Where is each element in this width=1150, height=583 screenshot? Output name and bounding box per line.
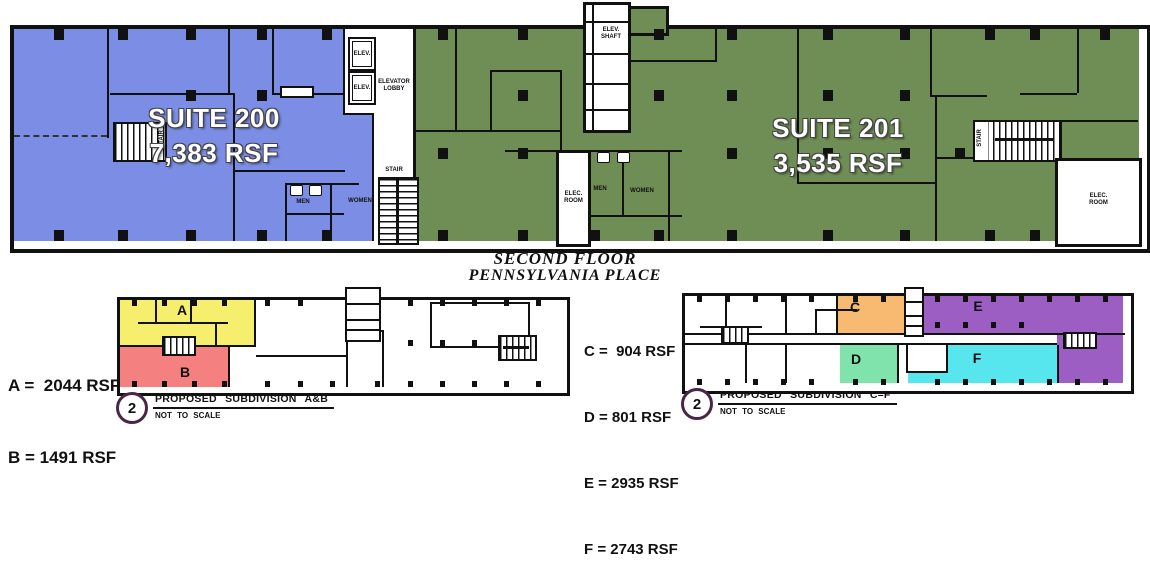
elev-label: ELEV. [354, 51, 371, 58]
column [440, 381, 445, 387]
legend-c: C = 904 RSF [584, 341, 679, 363]
legend-d: D = 801 RSF [584, 407, 679, 429]
subdivision-cf-plan: C E D F [682, 293, 1134, 394]
column [654, 230, 664, 241]
region-b-label: B [173, 364, 197, 380]
column [823, 230, 833, 241]
staircase-small [162, 336, 196, 356]
lobby-staircase [378, 177, 419, 245]
stair-rail [396, 179, 399, 243]
wall [430, 302, 530, 304]
column [162, 300, 167, 306]
region-a-label: A [170, 302, 194, 318]
suite-200-title: SUITE 200 7,383 RSF [109, 101, 319, 171]
column [985, 29, 995, 40]
wall [815, 309, 817, 333]
men-room-label: MEN [585, 186, 615, 193]
column [298, 381, 303, 387]
wall [930, 95, 987, 97]
shaft-divider [906, 301, 922, 303]
column [322, 230, 332, 241]
women-room-label: WOMEN [344, 198, 376, 205]
column [1019, 322, 1024, 328]
column [438, 230, 448, 241]
men-room-label: MEN [288, 199, 318, 206]
column [1075, 379, 1080, 385]
column [1047, 379, 1052, 385]
wall [560, 70, 562, 150]
column [823, 29, 833, 40]
wall [382, 330, 384, 387]
column [265, 300, 270, 306]
wall [490, 70, 492, 132]
wall [505, 150, 556, 152]
wall [343, 29, 345, 115]
wall [430, 302, 432, 348]
column [330, 381, 335, 387]
stair-label: STAIR [372, 167, 416, 174]
wall [343, 113, 374, 115]
wall [228, 29, 230, 93]
caption-cf-note: NOT TO SCALE [718, 405, 897, 416]
elevator-shaft: ELEV. SHAFT [583, 2, 631, 133]
column [118, 29, 128, 40]
column [985, 230, 995, 241]
column [257, 230, 267, 241]
column [472, 381, 477, 387]
column [963, 322, 968, 328]
column [222, 300, 227, 306]
elec-room-label: ELEC. ROOM [1058, 193, 1139, 207]
column [265, 381, 270, 387]
building-title: PENNSYLVANIA PLACE [0, 267, 1130, 285]
column [504, 381, 509, 387]
column [1019, 379, 1024, 385]
stair-rail [503, 346, 529, 349]
toilet-fixture [290, 185, 303, 196]
column [1075, 296, 1080, 302]
region-e-label: E [966, 298, 990, 314]
elec-room-right: ELEC. ROOM [1055, 158, 1142, 247]
wall [1057, 345, 1059, 383]
staircase-small [498, 335, 537, 361]
column [408, 300, 413, 306]
column [809, 296, 814, 302]
column [881, 296, 886, 302]
column [753, 379, 758, 385]
column [935, 296, 940, 302]
column [504, 300, 509, 306]
wall [490, 70, 560, 72]
stair-rail [995, 138, 1053, 141]
legend-ab: A = 2044 RSF B = 1491 RSF [8, 326, 120, 494]
caption-ab-title: PROPOSED SUBDIVISION A&B [153, 392, 334, 409]
column [727, 230, 737, 241]
elevator-shaft-small [904, 287, 924, 337]
wall [233, 170, 235, 241]
column [725, 296, 730, 302]
column [991, 379, 996, 385]
column [900, 29, 910, 40]
elec-room-label: ELEC. ROOM [559, 191, 588, 205]
shaft-divider [347, 319, 379, 321]
column [991, 322, 996, 328]
elevator-shaft-small [345, 287, 381, 342]
column [900, 90, 910, 101]
legend-f: F = 2743 RSF [584, 539, 679, 561]
wall [584, 215, 682, 217]
suite-201-area-text: 3,535 RSF [738, 146, 938, 181]
shaft-divider [586, 21, 628, 23]
shaft-divider [906, 325, 922, 327]
floor-title: SECOND FLOOR [0, 249, 1130, 269]
column [518, 90, 528, 101]
column [697, 379, 702, 385]
column [536, 381, 541, 387]
column [438, 29, 448, 40]
detail-marker: 2 [116, 392, 148, 424]
legend-cf: C = 904 RSF D = 801 RSF E = 2935 RSF F =… [584, 297, 679, 583]
column [590, 230, 600, 241]
suite-200-name: SUITE 200 [109, 101, 319, 136]
staircase-small [1063, 332, 1097, 349]
main-floor-plan: ELEV. ELEV. ELEVATOR LOBBY STAIR STAIR M… [10, 25, 1150, 253]
shaft-divider [906, 315, 922, 317]
column [727, 90, 737, 101]
legend-a: A = 2044 RSF [8, 374, 120, 398]
column [257, 90, 267, 101]
column [1103, 296, 1108, 302]
wall [215, 324, 217, 347]
wall [625, 60, 717, 62]
shaft-divider [347, 329, 379, 331]
wall [254, 300, 256, 347]
women-room-label: WOMEN [626, 188, 658, 195]
column [1030, 230, 1040, 241]
elevator-cab: ELEV. [348, 37, 376, 71]
column [192, 381, 197, 387]
column [322, 29, 332, 40]
wall [668, 150, 670, 241]
column [222, 381, 227, 387]
suite-200-area-text: 7,383 RSF [109, 136, 319, 171]
column [132, 381, 137, 387]
shaft-wall [592, 5, 594, 130]
column [697, 296, 702, 302]
toilet-fixture [597, 152, 610, 163]
washroom-block [906, 343, 948, 373]
wall [836, 296, 838, 333]
column [727, 148, 737, 159]
lease-line-dashed [14, 135, 107, 137]
wall [285, 183, 287, 241]
wall [155, 300, 157, 322]
column [54, 230, 64, 241]
wall [1077, 29, 1079, 93]
column [438, 148, 448, 159]
column [440, 340, 445, 346]
column [823, 90, 833, 101]
wall [372, 115, 374, 241]
column [1019, 296, 1024, 302]
region-d-label: D [844, 351, 868, 367]
column [375, 381, 380, 387]
wall [1058, 120, 1138, 122]
wall [228, 347, 230, 387]
subdivision-ab-plan: A B [117, 297, 570, 396]
column [900, 230, 910, 241]
column [472, 300, 477, 306]
elev-shaft-label: ELEV. SHAFT [594, 27, 628, 41]
column [853, 379, 858, 385]
column [518, 148, 528, 159]
column [440, 300, 445, 306]
wall [1020, 93, 1077, 95]
column [408, 340, 413, 346]
caption-cf-title: PROPOSED SUBDIVISION C–F [718, 388, 897, 405]
column [186, 90, 196, 101]
elec-room-center: ELEC. ROOM [556, 150, 591, 247]
wall [715, 29, 717, 60]
shaft-divider [586, 53, 628, 55]
toilet-fixture [617, 152, 630, 163]
column [257, 29, 267, 40]
column [298, 300, 303, 306]
column [1100, 29, 1110, 40]
column [54, 29, 64, 40]
suite-201-name: SUITE 201 [738, 111, 938, 146]
wall [256, 355, 348, 357]
column [162, 381, 167, 387]
detail-marker: 2 [681, 388, 713, 420]
wall [785, 345, 787, 383]
caption-ab-note: NOT TO SCALE [153, 409, 334, 420]
column [654, 90, 664, 101]
wall [415, 130, 560, 132]
wall [455, 29, 457, 130]
counter-icon [280, 86, 314, 98]
wall [285, 213, 344, 215]
column [781, 379, 786, 385]
shaft-divider [586, 83, 628, 85]
column [753, 296, 758, 302]
legend-b: B = 1491 RSF [8, 446, 120, 470]
staircase-small [721, 326, 749, 344]
column [472, 340, 477, 346]
column [955, 148, 965, 159]
column [935, 322, 940, 328]
column [809, 379, 814, 385]
wall [745, 345, 747, 383]
column [132, 300, 137, 306]
column [1030, 29, 1040, 40]
caption-cf: 2 PROPOSED SUBDIVISION C–F NOT TO SCALE [681, 388, 897, 420]
column [881, 379, 886, 385]
region-c-label: C [843, 299, 867, 315]
suite201-staircase: STAIR [973, 120, 1062, 162]
column [518, 29, 528, 40]
suite-200-area-extension [343, 115, 374, 241]
column [991, 296, 996, 302]
shaft-divider [586, 109, 628, 111]
wall [897, 345, 899, 383]
detail-number: 2 [128, 400, 136, 417]
column [1103, 379, 1108, 385]
column [118, 230, 128, 241]
column [186, 29, 196, 40]
column [518, 230, 528, 241]
region-f-label: F [965, 350, 989, 366]
wall [272, 29, 274, 93]
column [186, 230, 196, 241]
caption-ab: 2 PROPOSED SUBDIVISION A&B NOT TO SCALE [116, 392, 334, 424]
wall [110, 93, 233, 95]
toilet-fixture [309, 185, 322, 196]
column [963, 379, 968, 385]
column [935, 379, 940, 385]
suite-201-title: SUITE 201 3,535 RSF [738, 111, 938, 181]
wall [797, 182, 935, 184]
column [408, 381, 413, 387]
legend-e: E = 2935 RSF [584, 473, 679, 495]
wall [930, 29, 932, 95]
elevator-lobby-label: ELEVATOR LOBBY [372, 79, 416, 93]
stair-label: STAIR [977, 129, 983, 147]
column [654, 29, 664, 40]
column [781, 296, 786, 302]
elev-label: ELEV. [354, 85, 371, 92]
column [1047, 296, 1052, 302]
column [536, 300, 541, 306]
detail-number: 2 [693, 396, 701, 413]
column [727, 29, 737, 40]
column [725, 379, 730, 385]
shaft-divider [347, 303, 379, 305]
